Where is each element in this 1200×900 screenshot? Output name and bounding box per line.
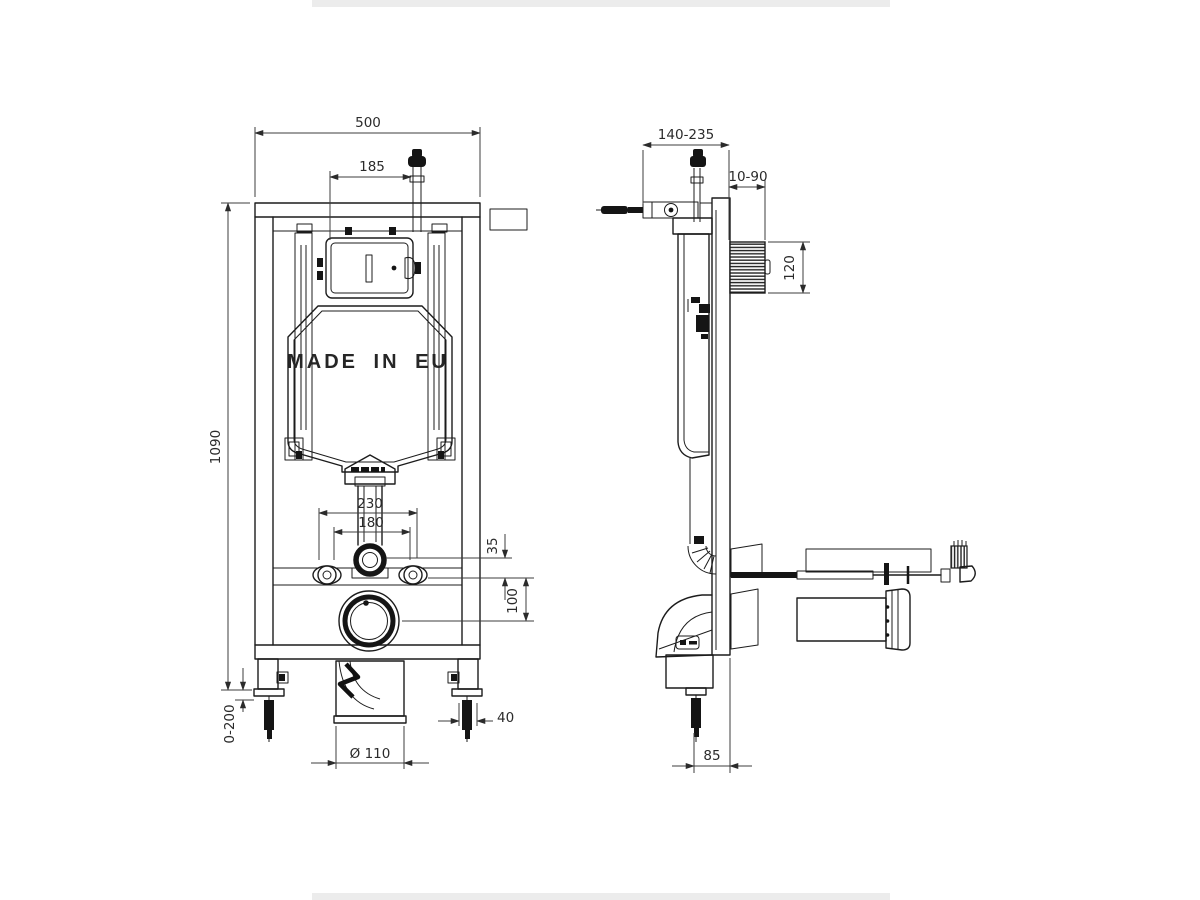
side-outlet-elbow (656, 595, 712, 657)
side-cistern (596, 149, 712, 458)
dim-access-height: 120 (782, 255, 798, 281)
fixing-hole-left (318, 566, 336, 584)
dim-foot-size: 40 (497, 710, 514, 726)
flush-plate-slot (366, 255, 372, 282)
mounting-bracket (806, 549, 931, 572)
fill-valve (688, 297, 710, 339)
protection-box (730, 242, 770, 293)
fixing-hole-right (404, 566, 422, 584)
drain-opening (339, 591, 399, 651)
dim-depth-range: 140-235 (658, 127, 714, 143)
wall-bracket-box (490, 209, 527, 230)
flush-pipe-port (356, 546, 384, 574)
dim-foot-to-wall: 85 (703, 748, 720, 764)
side-view: 140-235 10-90 120 85 (596, 127, 975, 773)
dim-wall-range: 10-90 (728, 169, 767, 185)
flush-plate-window (317, 238, 421, 298)
threaded-rod (731, 572, 797, 578)
water-supply-valve (596, 202, 698, 218)
dim-fixing-inner: 180 (358, 515, 384, 531)
technical-drawing: MADE IN EU (0, 0, 1200, 900)
side-dimensions: 140-235 10-90 120 85 (643, 127, 810, 773)
dim-drain-offset: 100 (505, 588, 521, 614)
dim-drain-dia: Ø 110 (350, 746, 391, 762)
dim-plate-offset: 185 (359, 159, 385, 175)
toilet-spigot (797, 589, 910, 650)
clamp-fitting (951, 540, 975, 582)
made-in-eu-label: MADE IN EU (287, 351, 449, 373)
top-border-strip (312, 0, 890, 7)
dim-foot-adjust: 0-200 (222, 704, 238, 743)
side-leg (666, 655, 713, 742)
top-fittings (297, 224, 447, 235)
flush-plate-pin (392, 266, 397, 271)
drawing-canvas: MADE IN EU (0, 0, 1200, 900)
dim-frame-width: 500 (355, 115, 381, 131)
front-dimensions: 500 185 1090 0-200 230 180 (208, 115, 534, 769)
guide-rails (295, 233, 445, 460)
side-frame-rail (700, 198, 730, 655)
dim-flush-offset: 35 (485, 537, 501, 554)
dim-frame-height: 1090 (208, 430, 224, 464)
front-view: MADE IN EU (208, 115, 534, 769)
wall-panels (731, 544, 762, 649)
outlet-pipe (334, 661, 406, 723)
fixing-cross-member (273, 546, 462, 585)
legs-and-feet (254, 659, 482, 742)
fill-pipe (408, 149, 426, 232)
fixing-accessories (731, 540, 975, 650)
bottom-border-strip (312, 893, 890, 900)
dim-fixing-outer: 230 (357, 496, 383, 512)
